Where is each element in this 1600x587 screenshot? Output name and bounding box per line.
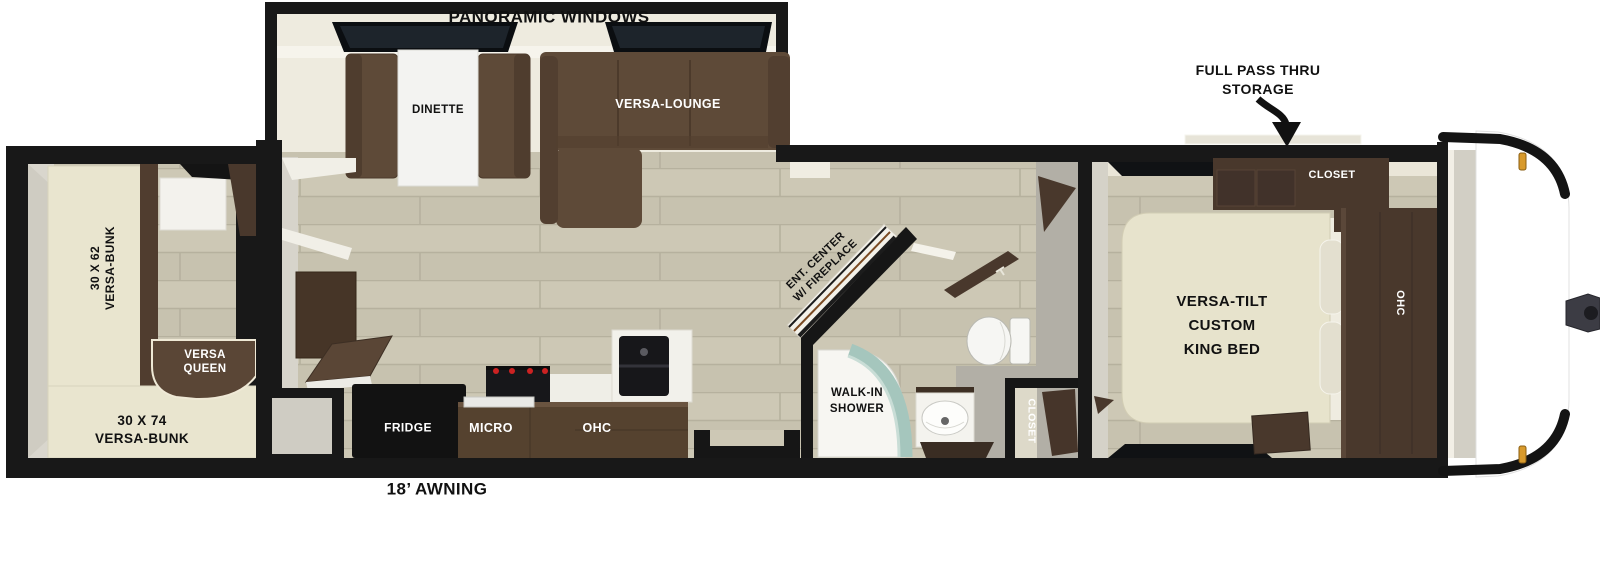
hitch-icon: [1566, 294, 1600, 332]
front-cap: [1437, 131, 1600, 477]
dinette-table: [398, 50, 478, 186]
label-walk-in-shower: WALK-IN SHOWER: [830, 385, 884, 417]
label-king-bed: VERSA-TILT CUSTOM KING BED: [1176, 290, 1267, 362]
pillow-icon: [1320, 322, 1344, 394]
label-versa-lounge: VERSA-LOUNGE: [615, 97, 721, 113]
pillow-icon: [1320, 240, 1344, 314]
toilet-icon: [967, 317, 1030, 365]
label-bedroom-closet: CLOSET: [1308, 169, 1355, 183]
dinette-furniture: [346, 50, 530, 186]
bedroom-wall: [1078, 162, 1092, 458]
pass-thru-door: [1185, 135, 1361, 144]
floorplan-canvas: PANORAMIC WINDOWS DINETTE VERSA-LOUNGE F…: [0, 0, 1600, 587]
label-bath-closet: CLOSET: [1024, 399, 1037, 444]
label-versa-queen: VERSA QUEEN: [184, 348, 227, 376]
bottom-wall: [6, 458, 1448, 478]
label-awning: 18’ AWNING: [387, 478, 488, 499]
label-bedroom-ohc: OHC: [1392, 290, 1406, 316]
label-full-pass-thru-storage: FULL PASS THRU STORAGE: [1196, 61, 1321, 99]
marker-light-icon: [1519, 446, 1526, 463]
bedroom-ohc-wardrobe: [1341, 208, 1443, 458]
bedroom-window-icon: [1108, 444, 1272, 458]
label-micro: MICRO: [469, 421, 513, 437]
bed-bench: [1252, 412, 1311, 454]
label-bunk-30x74: 30 X 74 VERSA-BUNK: [95, 412, 189, 448]
label-dinette: DINETTE: [412, 103, 464, 117]
label-bunk-30x62: 30 X 62 VERSA-BUNK: [88, 226, 118, 310]
marker-light-icon: [1519, 153, 1526, 170]
label-kitchen-ohc: OHC: [583, 421, 612, 437]
label-fridge: FRIDGE: [384, 421, 432, 436]
label-panoramic-windows: PANORAMIC WINDOWS: [448, 6, 649, 27]
